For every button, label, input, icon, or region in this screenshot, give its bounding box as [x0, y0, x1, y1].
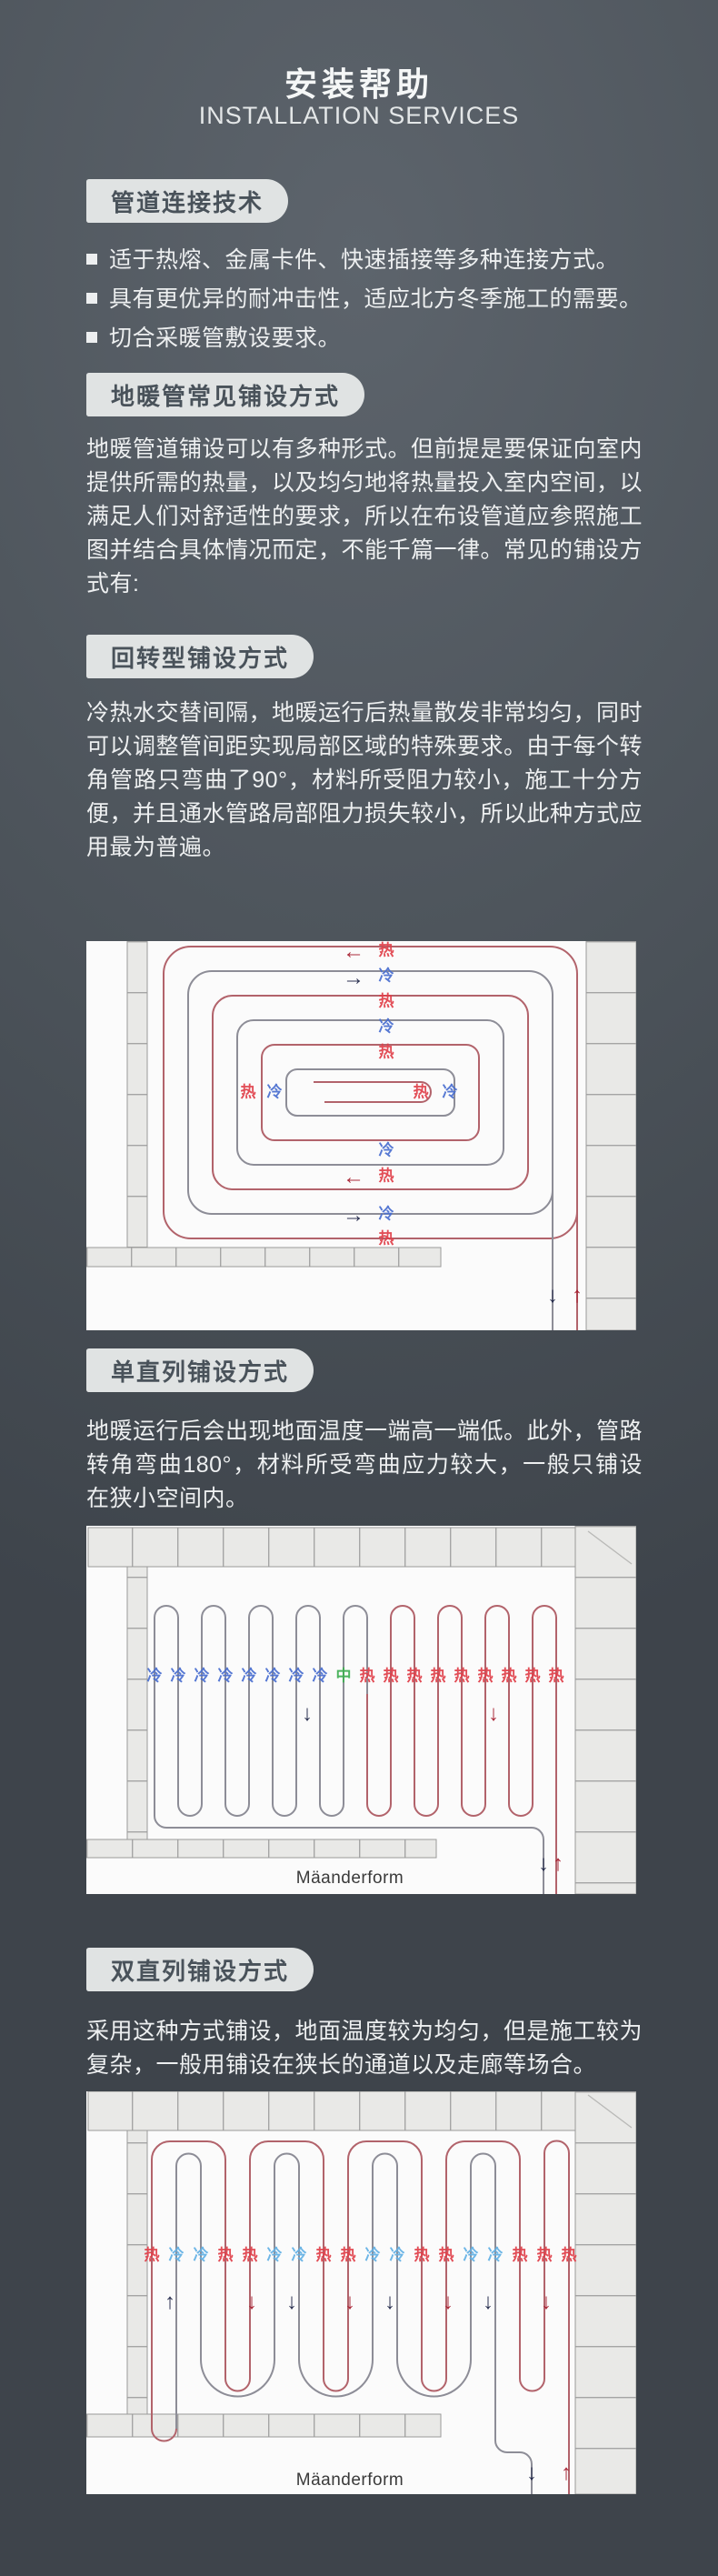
- bullet-text: 适于热熔、金属卡件、快速插接等多种连接方式。: [109, 246, 619, 275]
- diagram-label: 热: [145, 2248, 160, 2263]
- double-row-laying-diagram: 热冷冷热热冷冷热热冷冷热热冷冷热热热↑↓↓↓↓↓↓↓↓↑ Mäanderform: [86, 2091, 636, 2494]
- bullet-item: 适于热熔、金属卡件、快速插接等多种连接方式。: [86, 246, 668, 285]
- diagram-caption: Mäanderform: [296, 1869, 404, 1889]
- diagram-label: 热: [379, 943, 394, 958]
- spiral-laying-diagram: 热←冷→热冷热热冷热冷冷热←冷→热↓↑: [86, 941, 636, 1330]
- page-subtitle: INSTALLATION SERVICES: [0, 102, 718, 130]
- diagram-label: 冷: [488, 2248, 504, 2263]
- pipe-tech-bullet-list: 适于热熔、金属卡件、快速插接等多种连接方式。 具有更优异的耐冲击性，适应北方冬季…: [86, 246, 668, 363]
- diagram-label: 冷: [169, 2248, 184, 2263]
- diagram-label: ↑: [561, 2462, 572, 2484]
- diagram-label: 热: [414, 2248, 430, 2263]
- diagram-label: 冷: [365, 2248, 381, 2263]
- single-row-diagram-labels: 冷冷冷冷冷冷冷冷中热热热热热热热热热↓↓↓↑: [86, 1526, 636, 1894]
- page-title: 安装帮助: [0, 58, 718, 105]
- badge-double-row-laying: 双直列铺设方式: [86, 1948, 314, 1991]
- diagram-label: 冷: [379, 1019, 394, 1035]
- bullet-text: 切合采暖管敷设要求。: [109, 324, 341, 353]
- diagram-label: ↓: [344, 2291, 355, 2313]
- diagram-label: 热: [439, 2248, 454, 2263]
- diagram-label: ↓: [302, 1703, 313, 1725]
- diagram-label: →: [343, 967, 364, 989]
- diagram-label: 冷: [147, 1669, 163, 1684]
- diagram-label: 冷: [292, 2248, 307, 2263]
- diagram-label: ↓: [538, 1853, 549, 1875]
- diagram-label: 冷: [379, 968, 394, 984]
- diagram-label: ↓: [547, 1285, 558, 1307]
- diagram-label: 热: [562, 2248, 577, 2263]
- bullet-text: 具有更优异的耐冲击性，适应北方冬季施工的需要。: [109, 285, 643, 314]
- diagram-label: ↓: [541, 2291, 552, 2313]
- diagram-label: 热: [243, 2248, 258, 2263]
- double-row-diagram-labels: 热冷冷热热冷冷热热冷冷热热冷冷热热热↑↓↓↓↓↓↓↓↓↑: [86, 2091, 636, 2494]
- diagram-label: 冷: [218, 1669, 234, 1684]
- diagram-label: 热: [379, 1231, 394, 1247]
- badge-pipe-connection-tech: 管道连接技术: [86, 179, 288, 223]
- diagram-label: ↑: [165, 2291, 175, 2313]
- diagram-label: 冷: [194, 1669, 210, 1684]
- diagram-label: 热: [379, 1045, 394, 1060]
- badge-single-row-laying: 单直列铺设方式: [86, 1348, 314, 1392]
- diagram-caption: Mäanderform: [296, 2471, 404, 2491]
- spiral-paragraph: 冷热水交替间隔，地暖运行后热量散发非常均匀，同时可以调整管间距实现局部区域的特殊…: [86, 697, 643, 865]
- diagram-label: 热: [513, 2248, 528, 2263]
- diagram-label: ←: [343, 1167, 364, 1188]
- diagram-label: 中: [336, 1669, 352, 1684]
- diagram-label: 冷: [267, 2248, 283, 2263]
- diagram-label: ↑: [572, 1285, 583, 1307]
- diagram-label: 热: [454, 1669, 470, 1684]
- diagram-label: 热: [241, 1085, 256, 1100]
- diagram-label: 冷: [171, 1669, 186, 1684]
- bullet-item: 切合采暖管敷设要求。: [86, 324, 668, 363]
- single-row-laying-diagram: 冷冷冷冷冷冷冷冷中热热热热热热热热热↓↓↓↑ Mäanderform: [86, 1526, 636, 1894]
- square-bullet-icon: [86, 293, 97, 304]
- diagram-label: 热: [218, 2248, 234, 2263]
- diagram-label: ←: [343, 941, 364, 963]
- spiral-diagram-labels: 热←冷→热冷热热冷热冷冷热←冷→热↓↑: [86, 941, 636, 1330]
- diagram-label: ↓: [488, 1703, 499, 1725]
- laying-intro-paragraph: 地暖管道铺设可以有多种形式。但前提是要保证向室内提供所需的热量，以及均匀地将热量…: [86, 433, 643, 601]
- installation-services-page: 安装帮助 INSTALLATION SERVICES 管道连接技术 适于热熔、金…: [0, 0, 718, 2576]
- bullet-item: 具有更优异的耐冲击性，适应北方冬季施工的需要。: [86, 285, 668, 324]
- diagram-label: 热: [502, 1669, 517, 1684]
- diagram-label: 冷: [390, 2248, 405, 2263]
- double-row-paragraph: 采用这种方式铺设，地面温度较为均匀，但是施工较为复杂，一般用铺设在狭长的通道以及…: [86, 2015, 643, 2082]
- diagram-label: 热: [549, 1669, 564, 1684]
- diagram-label: 冷: [265, 1669, 281, 1684]
- diagram-label: ↓: [384, 2291, 395, 2313]
- diagram-label: 热: [360, 1669, 375, 1684]
- diagram-label: 热: [341, 2248, 356, 2263]
- diagram-label: 热: [379, 994, 394, 1009]
- diagram-label: 冷: [443, 1085, 458, 1100]
- diagram-label: 热: [316, 2248, 332, 2263]
- diagram-label: ↓: [526, 2462, 537, 2484]
- diagram-label: 热: [407, 1669, 423, 1684]
- diagram-label: ↓: [443, 2291, 454, 2313]
- diagram-label: 冷: [313, 1669, 328, 1684]
- diagram-label: ↑: [553, 1853, 563, 1875]
- diagram-label: 冷: [267, 1085, 283, 1100]
- diagram-label: ↓: [483, 2291, 494, 2313]
- diagram-label: 冷: [242, 1669, 257, 1684]
- diagram-label: 冷: [194, 2248, 209, 2263]
- square-bullet-icon: [86, 254, 97, 265]
- badge-common-laying-methods: 地暖管常见铺设方式: [86, 373, 364, 416]
- diagram-label: 热: [478, 1669, 494, 1684]
- diagram-label: 冷: [289, 1669, 304, 1684]
- diagram-label: →: [343, 1205, 364, 1227]
- diagram-label: 热: [414, 1085, 429, 1100]
- diagram-label: ↓: [286, 2291, 297, 2313]
- diagram-label: 热: [537, 2248, 553, 2263]
- badge-spiral-laying: 回转型铺设方式: [86, 635, 314, 678]
- diagram-label: 冷: [464, 2248, 479, 2263]
- diagram-label: 热: [384, 1669, 399, 1684]
- diagram-label: 热: [525, 1669, 541, 1684]
- single-row-paragraph: 地暖运行后会出现地面温度一端高一端低。此外，管路转角弯曲180°，材料所受弯曲应…: [86, 1415, 643, 1516]
- diagram-label: ↓: [246, 2291, 257, 2313]
- diagram-label: 冷: [379, 1207, 394, 1222]
- diagram-label: 热: [431, 1669, 446, 1684]
- square-bullet-icon: [86, 332, 97, 343]
- diagram-label: 冷: [379, 1143, 394, 1158]
- diagram-label: 热: [379, 1168, 394, 1184]
